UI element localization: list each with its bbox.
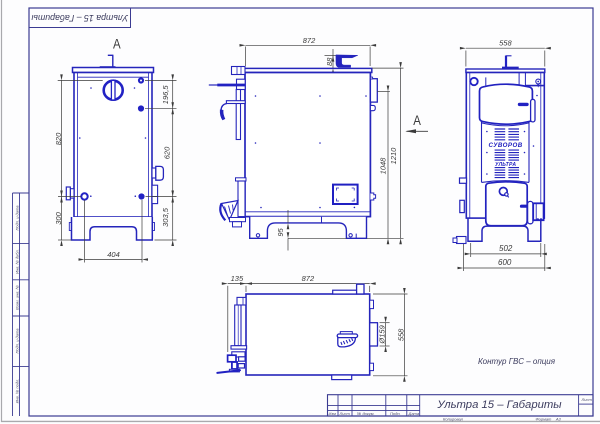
svg-text:303,5: 303,5 (161, 207, 170, 227)
svg-text:196,5: 196,5 (161, 85, 170, 105)
svg-text:502: 502 (499, 244, 513, 253)
svg-text:1048: 1048 (379, 157, 388, 175)
svg-text:300: 300 (54, 211, 63, 224)
svg-text:УЛЬТРА: УЛЬТРА (495, 162, 516, 168)
svg-text:А: А (413, 112, 421, 128)
svg-text:872: 872 (302, 274, 315, 283)
svg-text:Лист: Лист (581, 397, 593, 402)
svg-text:Формат А3: Формат А3 (536, 417, 562, 422)
svg-text:95: 95 (276, 228, 285, 237)
svg-text:СУВОРОВ: СУВОРОВ (489, 142, 523, 149)
svg-text:872: 872 (303, 36, 316, 45)
svg-text:Ø159: Ø159 (378, 324, 387, 344)
svg-text:Инв. № подл.: Инв. № подл. (14, 379, 19, 404)
svg-text:Лист: Лист (339, 411, 351, 416)
svg-text:Инв. № дубл.: Инв. № дубл. (14, 249, 19, 274)
svg-text:Ультра 15 – Габариты: Ультра 15 – Габариты (31, 13, 129, 23)
svg-text:Изм: Изм (329, 411, 337, 416)
svg-text:620: 620 (163, 146, 172, 159)
svg-text:Копировал: Копировал (443, 417, 464, 422)
svg-text:1210: 1210 (389, 147, 398, 165)
svg-text:Контур ГВС – опция: Контур ГВС – опция (478, 357, 556, 366)
svg-text:Подп. и дата: Подп. и дата (14, 328, 19, 354)
svg-text:88: 88 (325, 57, 334, 66)
svg-text:Подп.: Подп. (390, 411, 401, 416)
svg-text:820: 820 (54, 132, 63, 145)
svg-text:Ультра 15 – Габариты: Ультра 15 – Габариты (436, 399, 562, 411)
svg-text:558: 558 (499, 39, 512, 48)
svg-text:404: 404 (107, 250, 120, 259)
svg-text:135: 135 (231, 274, 244, 283)
svg-text:А: А (113, 35, 121, 51)
svg-text:600: 600 (498, 258, 512, 267)
svg-text:Взам. инв. №: Взам. инв. № (14, 284, 19, 309)
svg-text:Подп. и дата: Подп. и дата (14, 205, 19, 231)
svg-text:558: 558 (396, 328, 405, 341)
svg-text:№ докум.: № докум. (357, 411, 375, 416)
svg-text:Дата: Дата (408, 411, 420, 416)
